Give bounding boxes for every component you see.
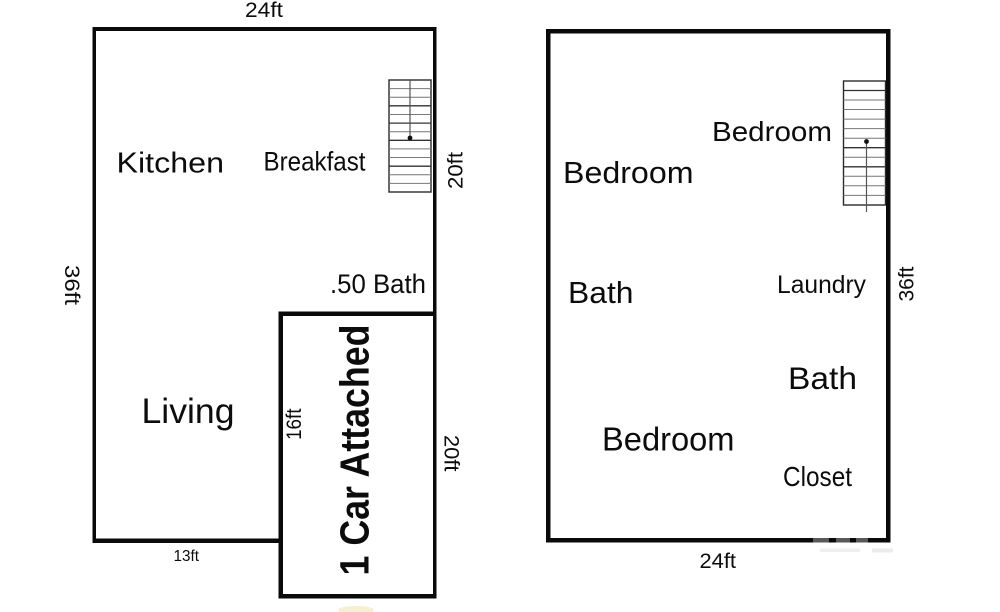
- svg-text:24ft: 24ft: [245, 0, 283, 22]
- svg-text:.50 Bath: .50 Bath: [330, 269, 426, 299]
- svg-text:Laundry: Laundry: [777, 271, 866, 299]
- svg-text:Bedroom: Bedroom: [563, 155, 694, 190]
- svg-text:20ft: 20ft: [444, 152, 468, 189]
- svg-text:13ft: 13ft: [174, 548, 200, 565]
- svg-text:Kitchen: Kitchen: [117, 148, 225, 180]
- svg-text:Breakfast: Breakfast: [264, 147, 367, 177]
- svg-text:36ft: 36ft: [60, 265, 84, 305]
- svg-text:Bedroom: Bedroom: [712, 116, 832, 147]
- svg-text:Living: Living: [142, 392, 235, 431]
- svg-text:20ft: 20ft: [440, 435, 464, 472]
- svg-text:1 Car Attached: 1 Car Attached: [332, 325, 378, 576]
- svg-text:Bath: Bath: [788, 360, 857, 396]
- svg-text:Bath: Bath: [568, 275, 634, 310]
- svg-text:Bedroom: Bedroom: [602, 422, 735, 459]
- svg-text:24ft: 24ft: [700, 549, 737, 573]
- svg-text:16ft: 16ft: [282, 408, 306, 440]
- svg-text:36ft: 36ft: [895, 266, 919, 301]
- svg-text:Closet: Closet: [783, 461, 852, 492]
